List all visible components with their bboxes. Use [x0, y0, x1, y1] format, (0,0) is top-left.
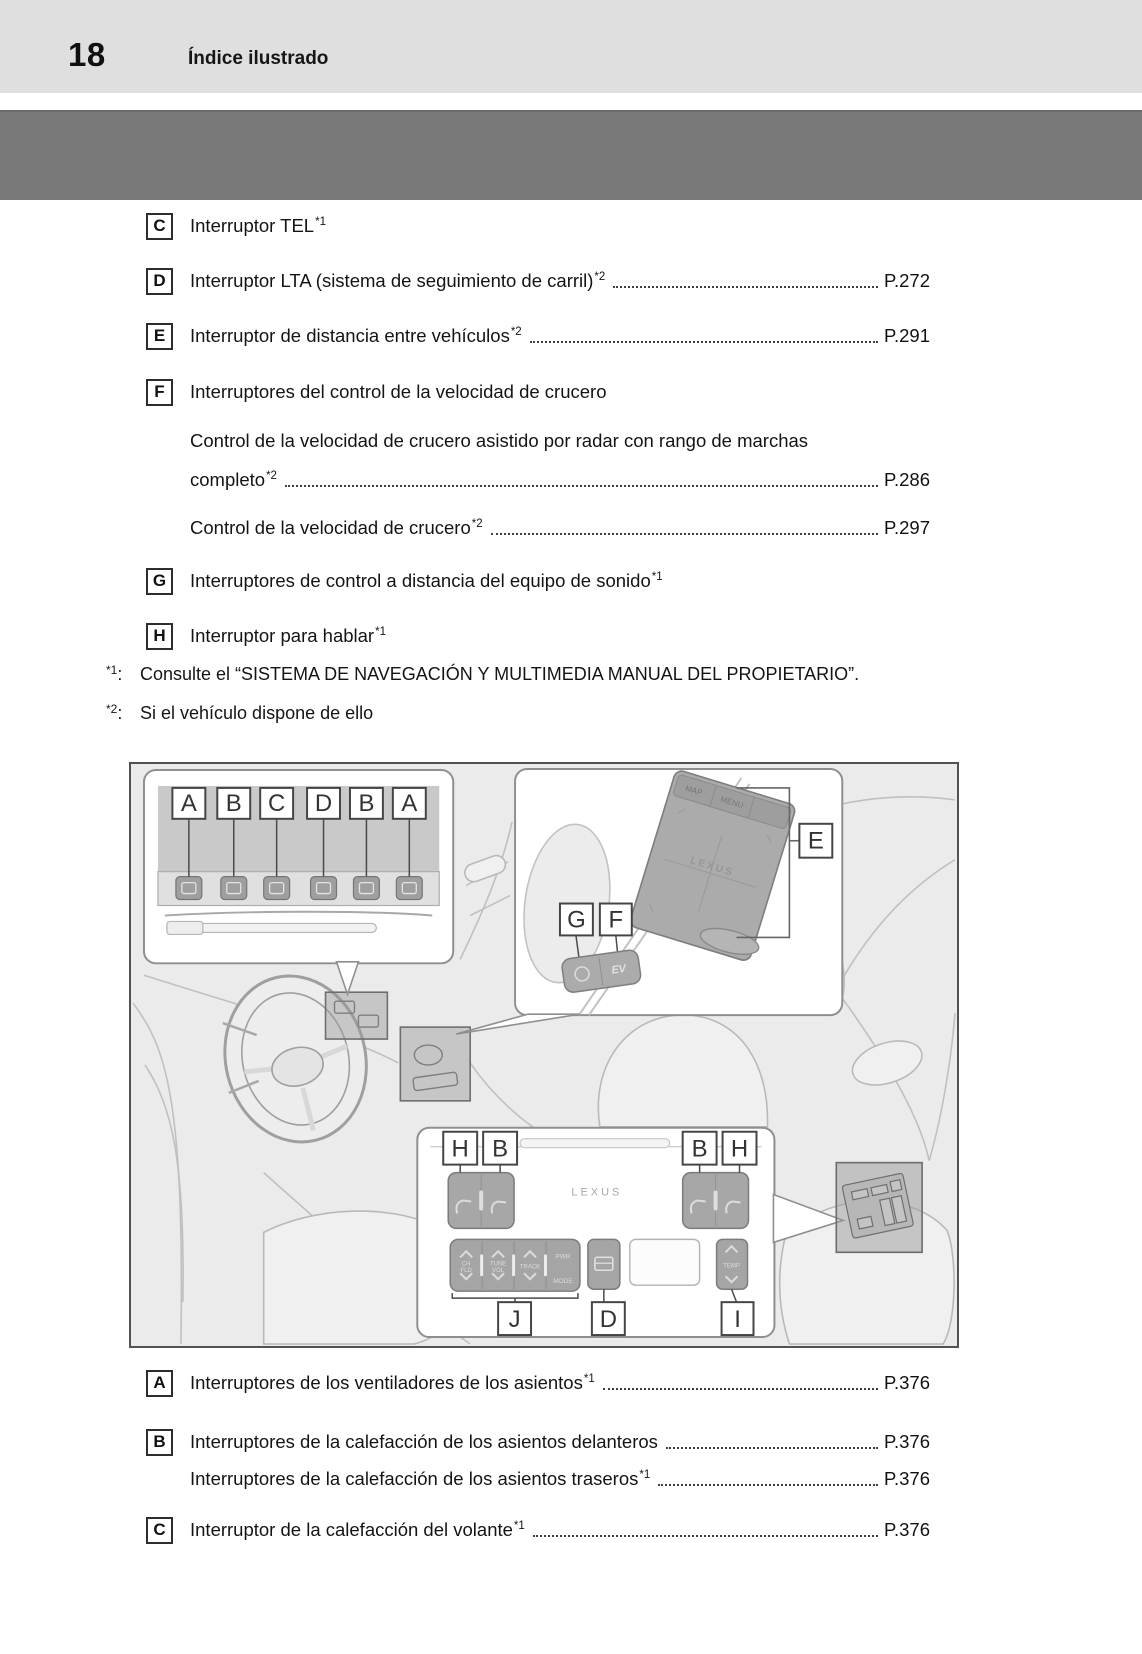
- footnote-ref: *1: [639, 1469, 650, 1481]
- chapter-divider-band: [0, 110, 1142, 200]
- page-header-band: 18 Índice ilustrado: [0, 0, 1142, 93]
- toc-subrow-rear-heating: Interruptores de la calefacción de los a…: [146, 1464, 930, 1494]
- pointer-wedge: [337, 962, 359, 994]
- inset-rear-panel: LEXUS H B: [417, 1128, 843, 1337]
- seat-climate-right: [683, 1173, 749, 1229]
- dotted-leader: [603, 1388, 878, 1390]
- callout-letter: D: [315, 790, 332, 817]
- footnote-ref: *2: [511, 326, 522, 338]
- blank-panel: [630, 1239, 700, 1285]
- callout-letter: A: [401, 790, 417, 817]
- page-reference[interactable]: P.376: [884, 1431, 930, 1453]
- item-letter-box: D: [146, 268, 173, 295]
- page-reference[interactable]: P.286: [884, 469, 930, 491]
- item-text: Control de la velocidad de crucero asist…: [190, 430, 808, 452]
- toc-subrow-cruise: Control de la velocidad de crucero*2 P.2…: [146, 513, 930, 543]
- toc-row-c-lower: C Interruptor de la calefacción del vola…: [146, 1515, 930, 1545]
- callout-letter-g: G: [567, 906, 586, 933]
- steering-wheel: [208, 961, 384, 1157]
- footnote-1: *1:Consulte el “SISTEMA DE NAVEGACIÓN Y …: [106, 664, 859, 685]
- item-letter-box: H: [146, 623, 173, 650]
- item-text: Interruptor de la calefacción del volant…: [190, 1519, 525, 1541]
- item-text: Interruptores de la calefacción de los a…: [190, 1468, 650, 1490]
- item-text: Interruptores del control de la velocida…: [190, 381, 607, 403]
- item-text: Interruptor TEL*1: [190, 215, 326, 237]
- footnote-ref: *2: [472, 518, 483, 530]
- toc-row-e: E Interruptor de distancia entre vehícul…: [146, 321, 930, 351]
- toc-row-b-lower: B Interruptores de la calefacción de los…: [146, 1427, 930, 1457]
- item-text: Interruptor para hablar*1: [190, 625, 386, 647]
- armrest-panel-highlight: [836, 1163, 922, 1253]
- dotted-leader: [533, 1535, 878, 1537]
- callout-letter: I: [734, 1306, 741, 1333]
- dotted-leader: [666, 1447, 878, 1449]
- item-letter-box: G: [146, 568, 173, 595]
- svg-text:TUNE: TUNE: [490, 1261, 506, 1267]
- page-number: 18: [68, 36, 106, 74]
- footnote-marker: *1:: [106, 664, 140, 685]
- callout-letter: B: [692, 1136, 708, 1163]
- callout-letter: B: [226, 790, 242, 817]
- footnote-2: *2:Si el vehículo dispone de ello: [106, 703, 373, 724]
- toc-row-a-lower: A Interruptores de los ventiladores de l…: [146, 1368, 930, 1398]
- seat-climate-left: [448, 1173, 514, 1229]
- pointer-wedge: [456, 1014, 580, 1034]
- footnote-ref: *2: [594, 271, 605, 283]
- toc-row-d: D Interruptor LTA (sistema de seguimient…: [146, 266, 930, 296]
- item-text: Interruptores de control a distancia del…: [190, 570, 663, 592]
- svg-text:MODE: MODE: [553, 1278, 573, 1285]
- item-text: Interruptor LTA (sistema de seguimiento …: [190, 270, 605, 292]
- svg-text:TRACK: TRACK: [520, 1264, 540, 1270]
- footnote-marker: *2:: [106, 703, 140, 724]
- toc-subrow-radar-line2: completo*2 P.286: [146, 465, 930, 495]
- interior-illustration-svg: A B C D B A: [131, 764, 957, 1346]
- dotted-leader: [530, 341, 878, 343]
- callout-letter-e: E: [808, 828, 824, 855]
- svg-text:FLD: FLD: [461, 1268, 473, 1274]
- item-text: completo*2: [190, 469, 277, 491]
- page-reference[interactable]: P.376: [884, 1468, 930, 1490]
- callout-letter-f: F: [609, 906, 624, 933]
- footnote-ref: *1: [315, 216, 326, 228]
- callout-letter: H: [731, 1136, 748, 1163]
- rear-audio-cluster: CH FLD TUNE VOL TRACK PWR MODE: [450, 1239, 580, 1291]
- item-text: Control de la velocidad de crucero*2: [190, 517, 483, 539]
- svg-text:PWR: PWR: [555, 1253, 570, 1260]
- toc-row-c: C Interruptor TEL*1: [146, 211, 930, 241]
- inset-front-panel: A B C D B A: [144, 770, 453, 994]
- footnote-ref: *1: [652, 571, 663, 583]
- callout-letter: J: [509, 1306, 521, 1333]
- page-reference[interactable]: P.272: [884, 270, 930, 292]
- manual-page: 18 Índice ilustrado C Interruptor TEL*1 …: [0, 0, 1142, 1654]
- dotted-leader: [658, 1484, 878, 1486]
- svg-text:VOL: VOL: [492, 1268, 505, 1274]
- item-letter-box: A: [146, 1370, 173, 1397]
- toc-subrow-radar-line1: Control de la velocidad de crucero asist…: [146, 426, 930, 456]
- page-reference[interactable]: P.297: [884, 517, 930, 539]
- item-text: Interruptores de la calefacción de los a…: [190, 1431, 658, 1453]
- callout-letter: A: [181, 790, 197, 817]
- dotted-leader: [613, 286, 878, 288]
- callout-letter: D: [600, 1306, 617, 1333]
- callout-letter: H: [452, 1136, 469, 1163]
- page-reference[interactable]: P.376: [884, 1372, 930, 1394]
- page-reference[interactable]: P.291: [884, 325, 930, 347]
- svg-text:CH: CH: [462, 1261, 471, 1267]
- toc-row-h: H Interruptor para hablar*1: [146, 621, 930, 651]
- callout-letter: B: [358, 790, 374, 817]
- lexus-logo: LEXUS: [571, 1187, 622, 1199]
- toc-row-g: G Interruptores de control a distancia d…: [146, 566, 930, 596]
- footnote-ref: *2: [266, 470, 277, 482]
- item-letter-box: C: [146, 1517, 173, 1544]
- dotted-leader: [491, 533, 878, 535]
- item-letter-box: F: [146, 379, 173, 406]
- item-text: Interruptor de distancia entre vehículos…: [190, 325, 522, 347]
- item-letter-box: C: [146, 213, 173, 240]
- dotted-leader: [285, 485, 878, 487]
- footnote-ref: *1: [584, 1373, 595, 1385]
- footnote-ref: *1: [514, 1520, 525, 1532]
- item-text: Interruptores de los ventiladores de los…: [190, 1372, 595, 1394]
- temp-button: TEMP: [717, 1239, 748, 1289]
- interior-illustration: A B C D B A: [129, 762, 959, 1348]
- item-letter-box: E: [146, 323, 173, 350]
- page-reference[interactable]: P.376: [884, 1519, 930, 1541]
- svg-text:TEMP: TEMP: [723, 1263, 740, 1269]
- callout-letter: B: [492, 1136, 508, 1163]
- inset-console: MAP MENU LEXUS E G F: [456, 769, 842, 1034]
- page-title: Índice ilustrado: [188, 48, 328, 70]
- callout-letter: C: [268, 790, 285, 817]
- sunshade-button: [588, 1239, 620, 1289]
- item-letter-box: B: [146, 1429, 173, 1456]
- footnote-ref: *1: [375, 626, 386, 638]
- toc-row-f: F Interruptores del control de la veloci…: [146, 377, 930, 407]
